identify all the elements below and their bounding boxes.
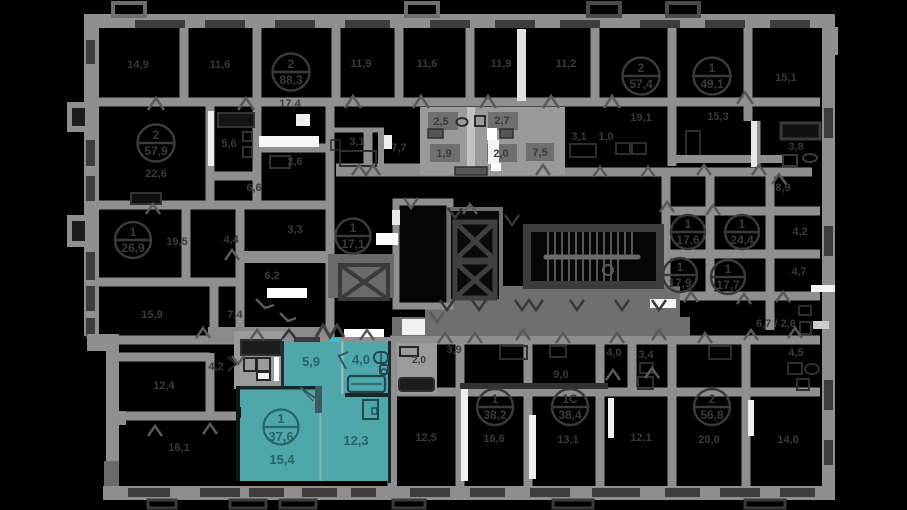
svg-text:56,8: 56,8	[700, 408, 724, 422]
svg-text:1: 1	[709, 61, 716, 75]
svg-text:6,2: 6,2	[264, 270, 279, 282]
svg-text:4,5: 4,5	[788, 347, 803, 359]
svg-text:7,7: 7,7	[391, 142, 406, 154]
svg-text:4,4: 4,4	[223, 234, 239, 246]
svg-text:1: 1	[725, 262, 732, 276]
svg-text:19,5: 19,5	[166, 236, 187, 248]
svg-text:2: 2	[153, 128, 160, 142]
svg-text:14,9: 14,9	[127, 59, 148, 71]
svg-text:6,6: 6,6	[246, 182, 261, 194]
svg-text:6,7 / 2,6: 6,7 / 2,6	[756, 318, 796, 330]
svg-text:8,9: 8,9	[775, 182, 790, 194]
svg-text:24,4: 24,4	[730, 233, 754, 247]
svg-text:11,2: 11,2	[556, 58, 577, 70]
svg-text:7,5: 7,5	[532, 147, 547, 159]
svg-text:17,6: 17,6	[676, 233, 700, 247]
svg-text:57,9: 57,9	[144, 144, 168, 158]
svg-text:49,1: 49,1	[700, 77, 724, 91]
svg-text:88,3: 88,3	[279, 73, 303, 87]
svg-text:16,6: 16,6	[483, 433, 504, 445]
svg-text:17,9: 17,9	[668, 276, 692, 290]
svg-text:1: 1	[130, 225, 137, 239]
svg-text:5,6: 5,6	[221, 138, 236, 150]
svg-text:19,1: 19,1	[630, 112, 651, 124]
svg-text:15,3: 15,3	[707, 111, 728, 123]
svg-text:4,2: 4,2	[792, 226, 807, 238]
svg-text:2: 2	[638, 61, 645, 75]
svg-text:12,5: 12,5	[415, 432, 436, 444]
svg-text:3,1: 3,1	[571, 131, 586, 143]
svg-text:3,4: 3,4	[638, 349, 654, 361]
svg-text:17,1: 17,1	[341, 237, 365, 251]
svg-text:17,4: 17,4	[279, 98, 301, 110]
svg-text:1: 1	[350, 221, 357, 235]
svg-text:1С: 1С	[562, 392, 578, 406]
svg-text:11,9: 11,9	[351, 58, 372, 70]
svg-text:3,1: 3,1	[349, 136, 364, 148]
svg-text:9,0: 9,0	[553, 369, 568, 381]
svg-text:1: 1	[277, 411, 284, 426]
svg-text:4,0: 4,0	[352, 352, 370, 367]
svg-text:2,7: 2,7	[494, 115, 509, 127]
svg-text:1,0: 1,0	[598, 131, 613, 143]
svg-text:5,9: 5,9	[302, 354, 320, 369]
svg-text:15,1: 15,1	[775, 72, 796, 84]
svg-text:3,9: 3,9	[446, 344, 461, 356]
svg-text:12,4: 12,4	[153, 380, 175, 392]
svg-text:14,0: 14,0	[777, 434, 798, 446]
svg-text:11,9: 11,9	[491, 58, 512, 70]
svg-text:12,3: 12,3	[343, 433, 368, 448]
svg-text:4,2: 4,2	[208, 361, 223, 373]
svg-text:4,7: 4,7	[791, 266, 806, 278]
svg-text:2,0: 2,0	[412, 355, 426, 366]
svg-text:16,1: 16,1	[168, 442, 189, 454]
svg-text:37,6: 37,6	[268, 429, 293, 444]
svg-text:13,1: 13,1	[557, 434, 578, 446]
svg-text:2,6: 2,6	[287, 156, 302, 168]
svg-text:7,4: 7,4	[227, 309, 243, 321]
svg-text:1: 1	[739, 217, 746, 231]
svg-text:26,9: 26,9	[121, 241, 145, 255]
svg-text:22,6: 22,6	[145, 168, 166, 180]
svg-text:1: 1	[677, 260, 684, 274]
svg-text:15,4: 15,4	[269, 452, 295, 467]
svg-text:1: 1	[685, 217, 692, 231]
svg-text:17,7: 17,7	[716, 278, 740, 292]
svg-text:2: 2	[709, 392, 716, 406]
svg-text:11,6: 11,6	[210, 59, 231, 71]
svg-text:3,3: 3,3	[287, 224, 302, 236]
svg-text:3,8: 3,8	[788, 141, 803, 153]
svg-text:38,2: 38,2	[483, 408, 507, 422]
svg-text:2,0: 2,0	[493, 148, 508, 160]
svg-text:2,5: 2,5	[433, 116, 448, 128]
svg-text:12,1: 12,1	[630, 432, 651, 444]
svg-text:1,9: 1,9	[436, 148, 451, 160]
svg-text:38,4: 38,4	[558, 408, 582, 422]
svg-text:15,9: 15,9	[141, 309, 162, 321]
svg-text:4,0: 4,0	[606, 347, 621, 359]
svg-text:20,0: 20,0	[698, 434, 719, 446]
svg-text:11,6: 11,6	[417, 58, 438, 70]
svg-text:2: 2	[288, 57, 295, 71]
svg-text:57,4: 57,4	[629, 77, 653, 91]
svg-text:1: 1	[492, 392, 499, 406]
